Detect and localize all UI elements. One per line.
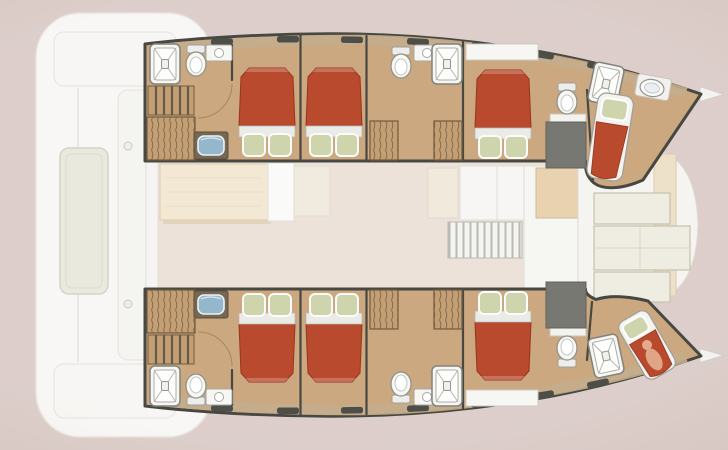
toilet <box>186 45 206 76</box>
locker <box>594 193 670 224</box>
companionway-grate <box>448 222 522 258</box>
catamaran-floorplan <box>0 0 728 450</box>
cleat <box>124 300 132 308</box>
sun-pad <box>60 148 108 294</box>
shower-cubicle <box>150 44 180 84</box>
wardrobe <box>434 290 462 329</box>
toilet <box>186 374 206 405</box>
shower-cubicle <box>150 366 180 406</box>
saloon <box>146 155 630 295</box>
galley-panel <box>428 168 458 218</box>
galley-cabinet <box>536 168 580 218</box>
staircase <box>148 335 194 364</box>
cleat <box>124 142 132 150</box>
blue-sink-vanity <box>194 132 228 159</box>
wardrobe <box>370 290 398 329</box>
wardrobe <box>147 117 195 160</box>
staircase <box>148 86 194 115</box>
wardrobe <box>147 290 195 333</box>
toilet <box>557 336 577 367</box>
desk-shelf <box>466 390 538 406</box>
toilet <box>391 47 411 78</box>
utility-unit <box>546 282 586 328</box>
wardrobe <box>434 121 462 160</box>
toilet <box>557 83 577 114</box>
washbasin-vanity <box>206 45 232 61</box>
shower-cubicle <box>432 366 462 406</box>
shower-cubicle <box>432 44 462 84</box>
wardrobe <box>370 121 398 160</box>
entry-step <box>146 160 158 290</box>
desk-shelf <box>466 44 538 60</box>
sofa-bench <box>268 163 294 221</box>
toilet <box>391 372 411 403</box>
utility-unit <box>546 122 586 168</box>
seat-cushion <box>294 166 330 216</box>
washbasin-vanity <box>206 389 232 405</box>
blue-sink-vanity <box>194 291 228 318</box>
